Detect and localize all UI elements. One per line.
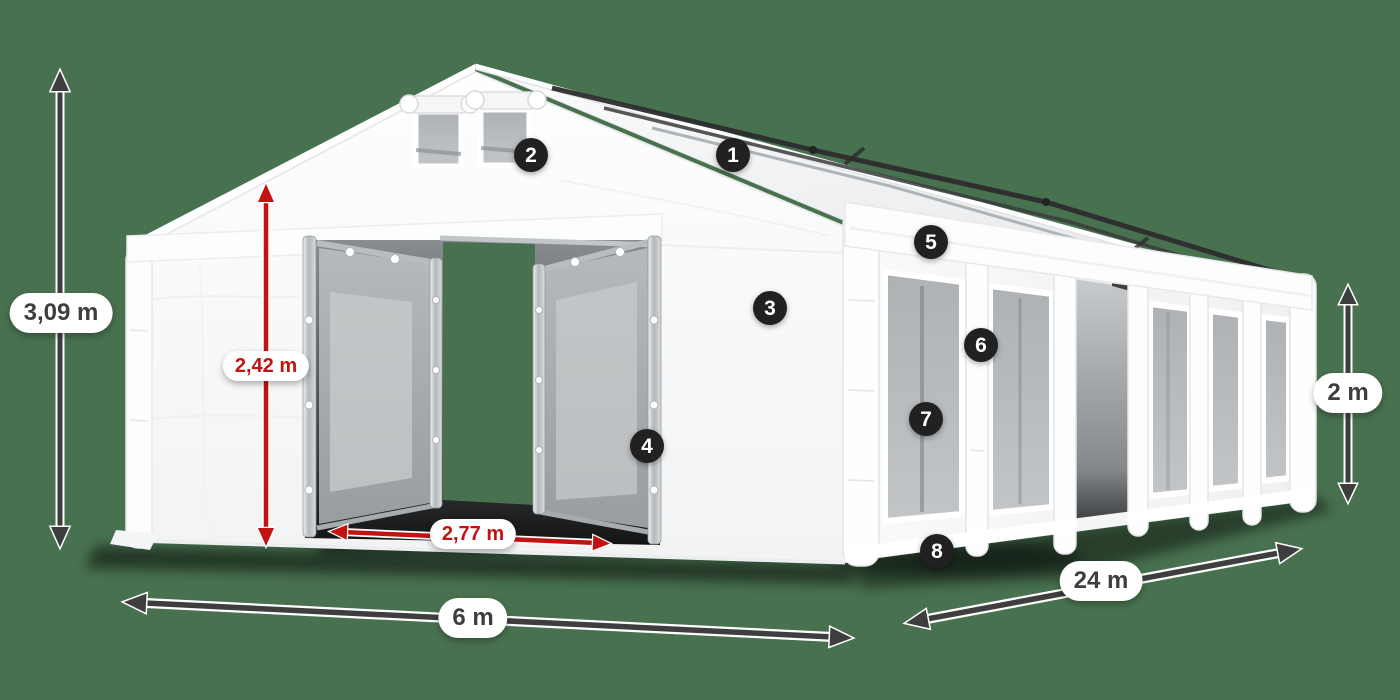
feature-marker-1[interactable]: 1: [716, 138, 750, 172]
entrance-door-leaf-right: [533, 242, 648, 532]
feature-marker-2[interactable]: 2: [514, 138, 548, 172]
vent-window-left: [416, 112, 461, 166]
feature-marker-7[interactable]: 7: [909, 402, 943, 436]
feature-marker-5[interactable]: 5: [914, 225, 948, 259]
dimension-label-entrance-width: 2,77 m: [430, 519, 516, 549]
feature-marker-8[interactable]: 8: [920, 534, 954, 568]
dimension-label-tent-width: 6 m: [438, 598, 507, 638]
dimension-label-entrance-height: 2,42 m: [223, 351, 309, 381]
dimension-label-side-height: 2 m: [1313, 373, 1382, 413]
entrance-post-right: [648, 236, 661, 544]
tent-drawing: [0, 0, 1400, 700]
see-through-gap: [443, 242, 535, 505]
front-left-corner-pillar: [126, 248, 152, 548]
feature-marker-6[interactable]: 6: [964, 328, 998, 362]
dimension-label-ridge-height: 3,09 m: [10, 293, 113, 333]
dimension-label-tent-length: 24 m: [1060, 561, 1143, 601]
entrance-door-leaf-left: [317, 243, 442, 528]
feature-marker-3[interactable]: 3: [753, 291, 787, 325]
side-wall: [843, 202, 1316, 566]
tent-dimensions-illustration: 3,09 m 2,42 m 2,77 m 6 m 24 m 2 m 1 2 3 …: [0, 0, 1400, 700]
feature-marker-4[interactable]: 4: [630, 429, 664, 463]
